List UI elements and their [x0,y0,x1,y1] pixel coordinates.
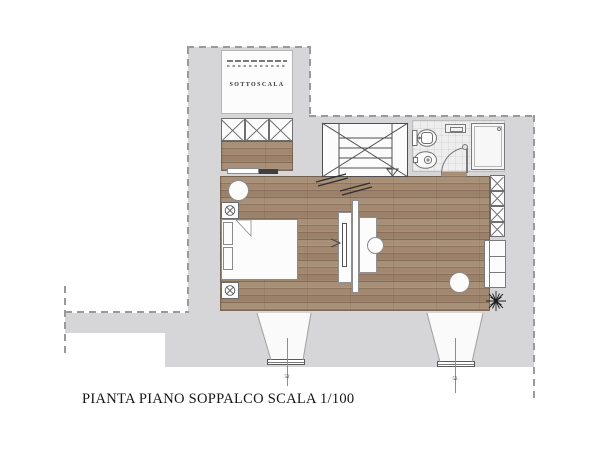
wardrobe-cell [221,118,245,141]
nightstand [221,202,239,219]
bathroom-cabinet [445,124,466,133]
wardrobe-cell [269,118,293,141]
stair-slope-dash-2 [227,65,287,67]
door-wall-segment [259,169,278,174]
drawing-caption: PIANTA PIANO SOPPALCO SCALA 1/100 [82,391,354,408]
window-sill-mark: 52 [279,375,295,380]
boundary-dash-bottom-left-h [65,311,188,313]
bathroom-door-leaf [466,146,468,173]
tv-screen [342,223,347,267]
floor-plan-canvas: SOTTOSCALA [0,0,600,460]
window-sill-mark: 52 [447,377,463,382]
window-axis [455,338,456,393]
window-frame [437,361,475,367]
desk-chair [367,237,384,254]
nightstand [221,282,239,299]
stair-slope-dash-1 [227,60,287,62]
shower [471,123,505,170]
boundary-dash-bottom-left-v [64,286,66,356]
shower-head-icon [497,127,501,131]
wardrobe-cell [245,118,269,141]
stool [228,180,249,201]
bed-pillow [223,222,233,245]
sofa-back [485,241,490,287]
shower-tray [474,126,502,167]
shelf-cell [490,191,505,207]
sofa [484,240,506,288]
boundary-dash-top [187,46,311,48]
bed [221,219,298,280]
stairs [322,123,408,177]
door-hinge-cap [462,144,468,150]
boundary-dash-notch [309,47,311,117]
wardrobe-top [221,118,293,141]
boundary-dash-top-right [309,115,535,117]
sofa-cushion-line [490,256,505,257]
shelving-right [490,175,505,237]
cabinet-inner [450,127,463,132]
sofa-cushion-line [490,272,505,273]
room-label-sottoscala: SOTTOSCALA [222,82,292,88]
corridor-floor [221,141,293,171]
pouf [449,272,470,293]
pocket-door-leaf [227,168,259,174]
shelf-cell [490,206,505,222]
partition-wall [352,200,359,293]
shelf-cell [490,222,505,238]
boundary-dash-left [187,47,189,313]
bed-pillow [223,247,233,270]
boundary-dash-right [533,115,535,401]
shelf-cell [490,175,505,191]
room-sottoscala: SOTTOSCALA [221,50,293,114]
